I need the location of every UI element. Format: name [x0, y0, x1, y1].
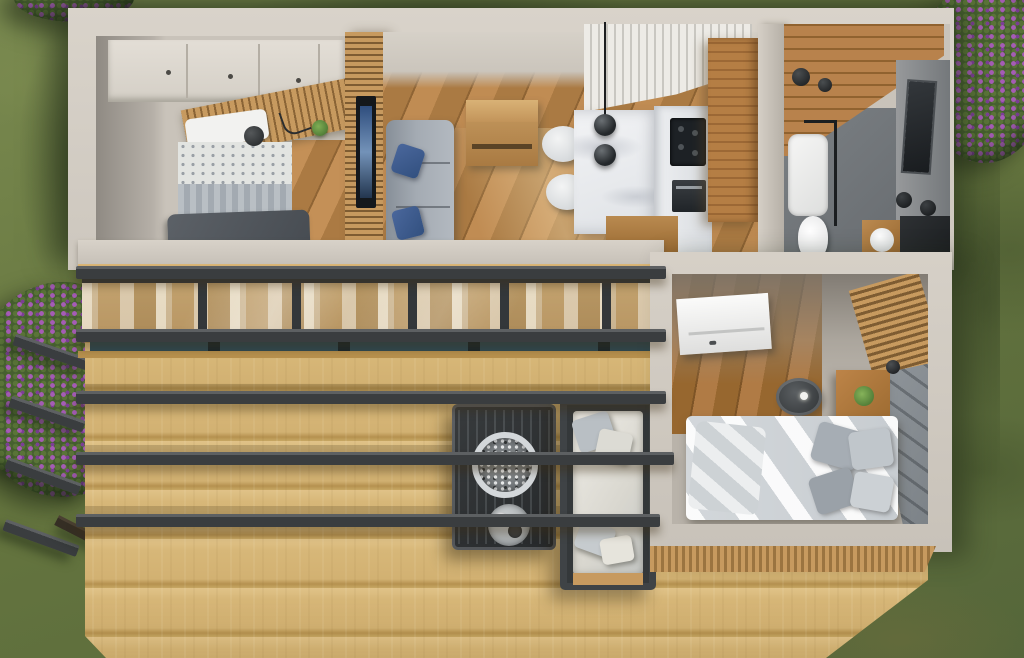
bed-pillow — [848, 427, 895, 470]
cabinet-seam — [258, 44, 260, 98]
wall-cap — [78, 240, 664, 266]
floor-lamp-bulb — [800, 392, 808, 400]
burner — [692, 150, 698, 156]
wall-lamp — [244, 126, 264, 146]
pendant-light — [594, 114, 616, 136]
pendant-light — [594, 144, 616, 166]
fire-bowl-pebbles — [472, 432, 538, 498]
sideboard-slot — [472, 144, 532, 149]
pendant-cable — [604, 22, 606, 126]
cabinet-knob — [166, 70, 171, 75]
oven-handle — [676, 186, 702, 189]
glass-reflection-strip — [90, 342, 650, 351]
door-seam — [689, 327, 765, 335]
pergola-beam — [76, 266, 666, 279]
ceiling-lamp — [792, 68, 810, 86]
double-bed — [686, 416, 898, 520]
tv-screen — [360, 106, 372, 198]
black-table-lamp — [886, 360, 900, 374]
folded-duvet — [688, 421, 767, 516]
cabinet-knob — [296, 78, 301, 83]
round-side-table — [776, 378, 822, 416]
cooktop — [670, 118, 706, 166]
bed-pillow — [849, 471, 895, 513]
bedroom-right-block — [650, 252, 952, 552]
cabinet-seam — [186, 44, 188, 98]
pergola-beam — [76, 452, 674, 465]
shower-glass-screen — [834, 120, 837, 226]
front-glazed-wall — [78, 240, 664, 360]
blue-pillow — [391, 205, 425, 241]
gray-sofa — [386, 120, 454, 252]
black-sconce — [920, 200, 936, 216]
burner — [678, 126, 684, 132]
door-handle — [709, 341, 716, 345]
dotted-sheet — [178, 142, 292, 186]
kitchen-bath-wall — [758, 24, 784, 260]
sideboard-top — [466, 100, 538, 122]
bedroom-right — [672, 274, 928, 524]
potted-plant — [854, 386, 874, 406]
oven — [672, 180, 706, 212]
cabinet-knob — [228, 74, 233, 79]
scene-aerial-tiny-house-render — [0, 0, 1024, 658]
open-white-door — [676, 293, 772, 355]
wooden-sideboard — [466, 100, 538, 166]
wood-siding-band — [650, 546, 936, 572]
outdoor-pillow — [599, 534, 635, 565]
ceiling-lamp — [818, 78, 832, 92]
wood-threshold — [78, 351, 664, 358]
wall-tv — [356, 96, 376, 208]
black-sconce — [896, 192, 912, 208]
bathroom — [784, 24, 950, 264]
bedroom-left — [96, 36, 352, 248]
pergola-beam — [76, 329, 666, 342]
burner — [692, 130, 698, 136]
shower-tray — [788, 134, 828, 216]
fire-pit-table — [452, 404, 556, 550]
hanging-plant — [312, 120, 328, 136]
burner — [678, 144, 684, 150]
outdoor-sofa-base — [573, 573, 643, 585]
pergola-beam — [76, 391, 666, 404]
house-main-block — [68, 8, 954, 270]
blue-pillow — [390, 142, 426, 179]
round-basin — [870, 228, 894, 252]
pergola-beam — [76, 514, 660, 527]
outdoor-sofa — [560, 398, 656, 590]
tall-wood-cabinet — [708, 38, 758, 222]
shower-glass-bar — [804, 120, 837, 123]
